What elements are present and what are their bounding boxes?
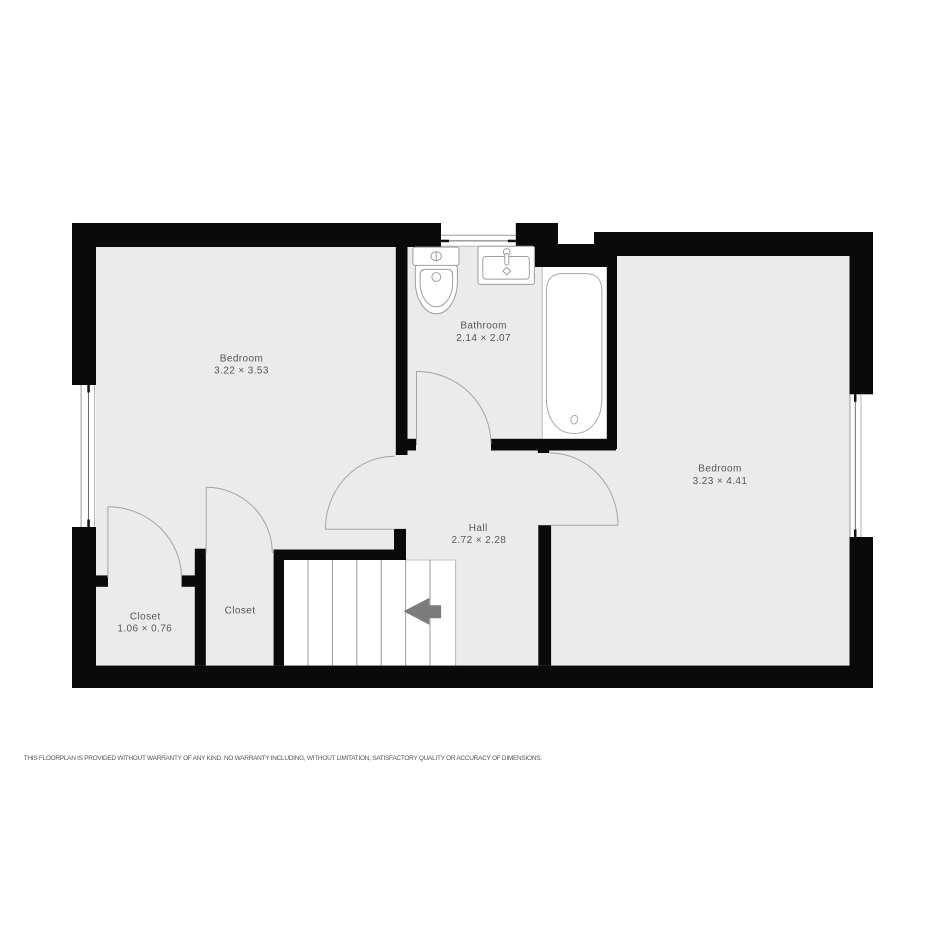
svg-text:2.14 × 2.07: 2.14 × 2.07: [456, 333, 511, 344]
svg-text:Bedroom: Bedroom: [220, 354, 263, 365]
svg-text:3.23 × 4.41: 3.23 × 4.41: [693, 476, 748, 487]
svg-text:3.22 × 3.53: 3.22 × 3.53: [214, 366, 269, 377]
svg-text:THIS FLOORPLAN IS PROVIDED WIT: THIS FLOORPLAN IS PROVIDED WITHOUT WARRA…: [24, 755, 542, 762]
svg-text:Bedroom: Bedroom: [698, 464, 741, 475]
svg-text:Closet: Closet: [130, 612, 161, 623]
svg-text:Bathroom: Bathroom: [460, 321, 507, 332]
svg-text:Hall: Hall: [469, 523, 488, 534]
svg-text:2.72 × 2.28: 2.72 × 2.28: [452, 535, 507, 546]
svg-text:Closet: Closet: [225, 606, 256, 617]
svg-text:1.06 × 0.76: 1.06 × 0.76: [117, 624, 172, 635]
